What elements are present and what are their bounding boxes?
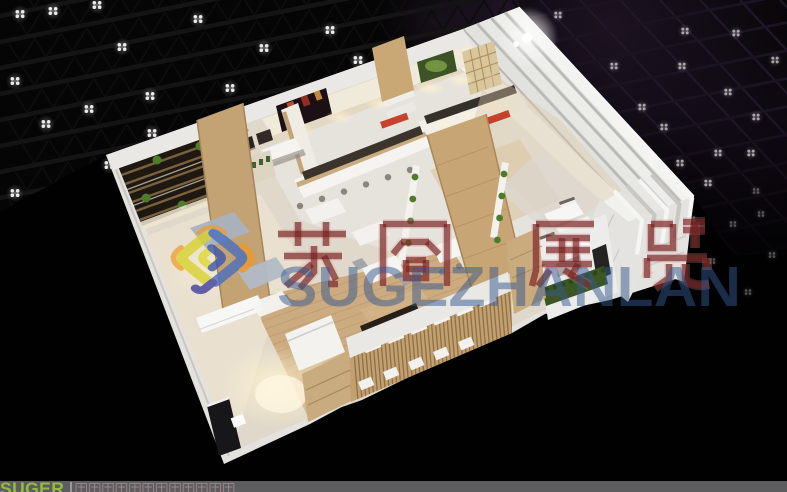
svg-text:SUGEZHANLAN: SUGEZHANLAN [277,255,741,319]
svg-text:SUGER: SUGER [0,479,64,492]
